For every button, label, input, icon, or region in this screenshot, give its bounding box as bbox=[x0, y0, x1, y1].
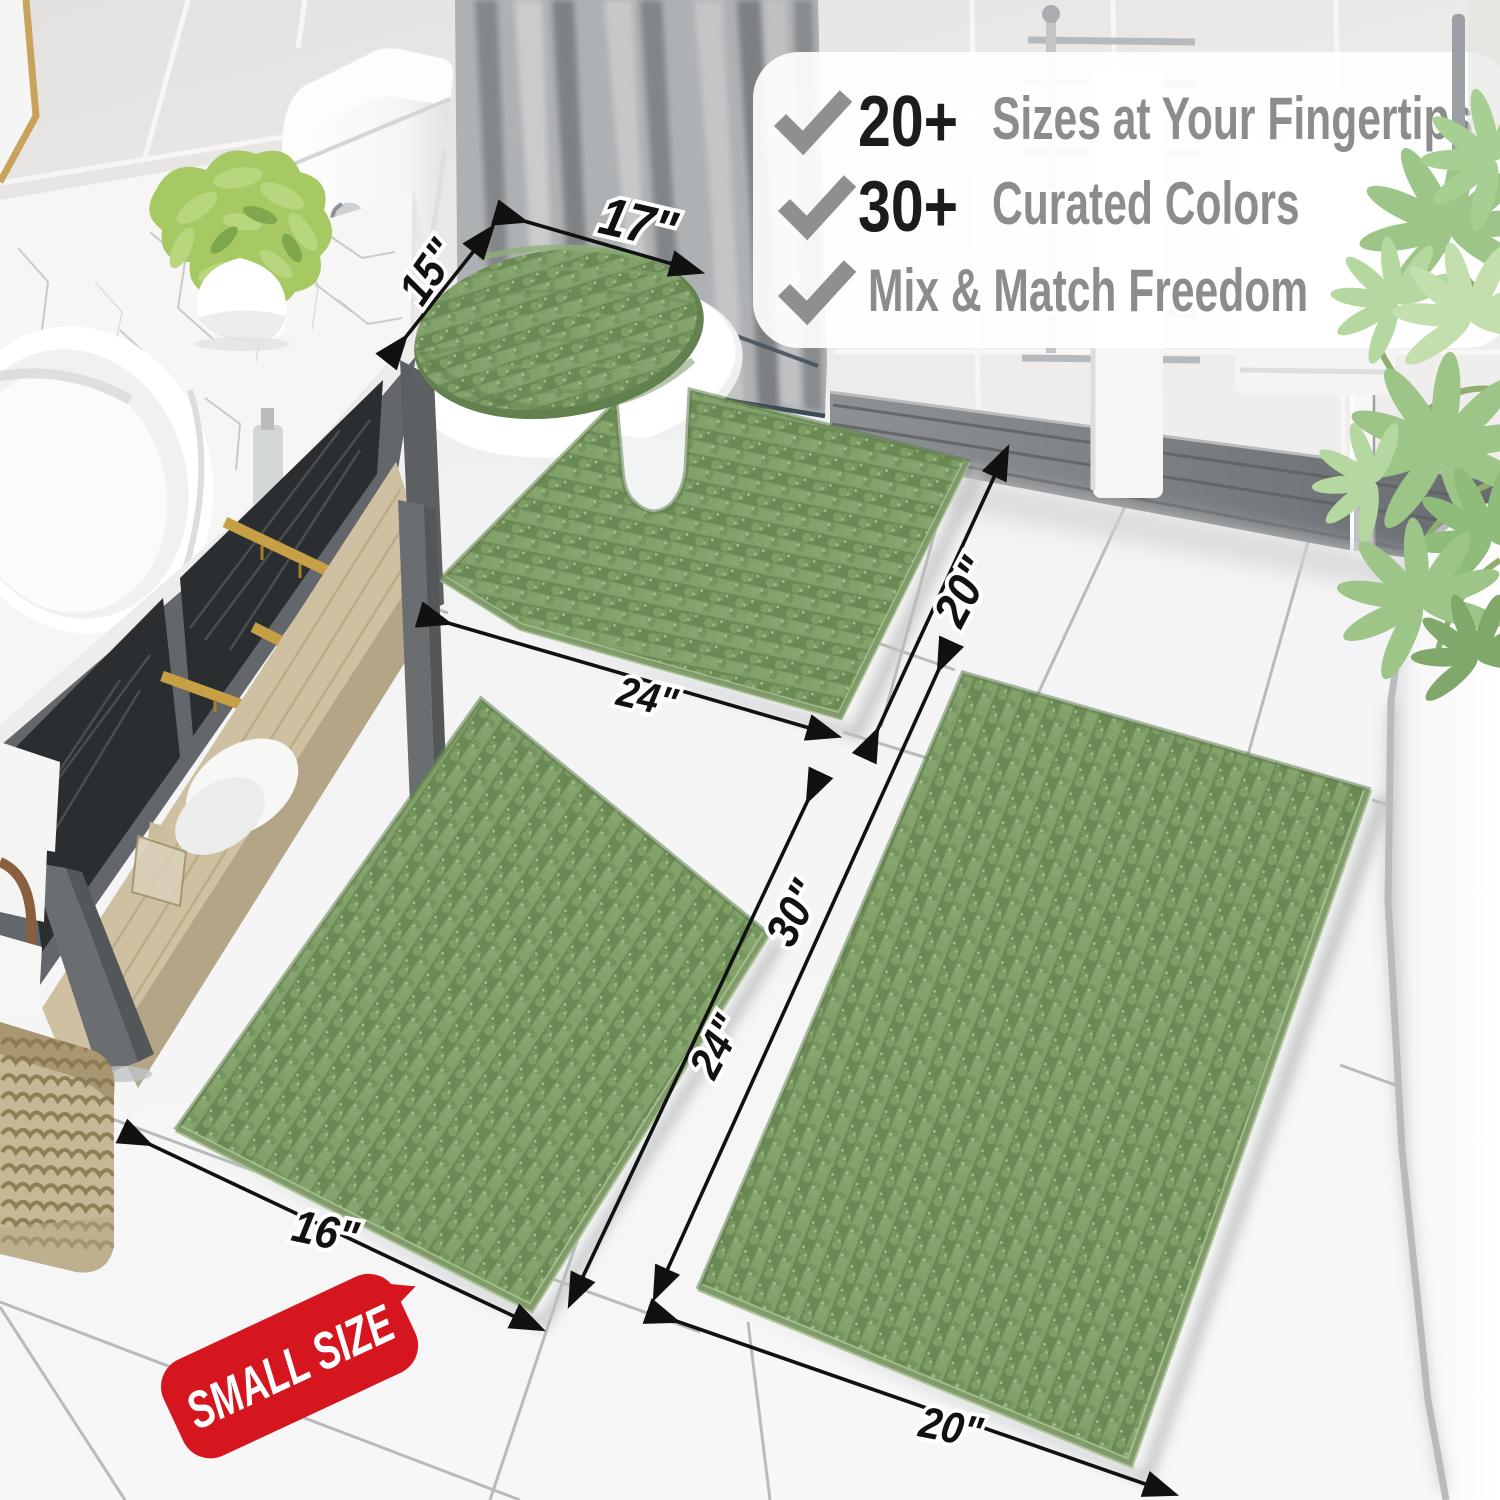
svg-text:Sizes at Your Fingertips: Sizes at Your Fingertips bbox=[992, 86, 1473, 153]
svg-text:30+: 30+ bbox=[858, 165, 958, 246]
svg-text:20+: 20+ bbox=[858, 80, 958, 161]
svg-text:Curated Colors: Curated Colors bbox=[992, 171, 1300, 238]
svg-text:Mix & Match Freedom: Mix & Match Freedom bbox=[868, 258, 1308, 325]
